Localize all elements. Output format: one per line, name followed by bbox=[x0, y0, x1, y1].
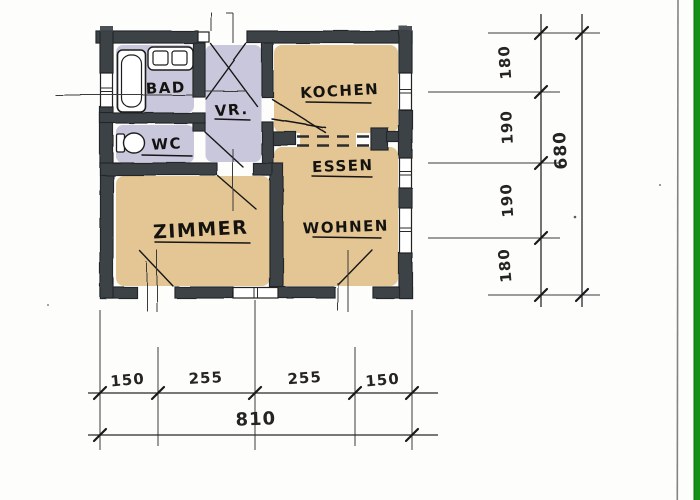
green-scan-stripe bbox=[694, 0, 700, 500]
window-zimmer-bottom bbox=[233, 288, 278, 299]
window-bad-left bbox=[101, 73, 113, 107]
room-label-essen: ESSEN bbox=[312, 156, 374, 176]
room-label-underline bbox=[306, 102, 371, 103]
dim-label-h3: 255 bbox=[287, 368, 322, 388]
horizontal-dimension-chain: 150 255 255 150 810 bbox=[88, 300, 438, 450]
dim-label-v1: 180 bbox=[495, 45, 515, 80]
dim-label-h2: 255 bbox=[188, 368, 223, 388]
room-label-underline bbox=[142, 155, 192, 156]
window-kochen-right bbox=[400, 73, 412, 110]
scan-speck bbox=[574, 216, 577, 219]
scanner-edge-line bbox=[677, 0, 678, 500]
room-label-bad: BAD bbox=[146, 78, 187, 97]
room-label-vorraum: VR. bbox=[214, 100, 249, 120]
dim-label-h4: 150 bbox=[365, 370, 401, 391]
dim-label-v3: 190 bbox=[497, 183, 517, 218]
room-label-underline bbox=[313, 237, 381, 238]
vertical-dimension-chain: 180 190 190 180 680 bbox=[428, 14, 600, 307]
dim-label-v2: 190 bbox=[497, 110, 517, 145]
dim-label-v-total: 680 bbox=[550, 131, 572, 170]
room-label-wohnen: WOHNEN bbox=[302, 217, 389, 238]
sink-symbol bbox=[148, 47, 193, 70]
dim-label-h-total: 810 bbox=[235, 408, 276, 430]
scan-speck bbox=[659, 184, 661, 186]
bathtub-symbol bbox=[118, 50, 146, 112]
window-wohnen-right bbox=[400, 208, 412, 253]
dim-label-h1: 150 bbox=[110, 370, 146, 391]
dim-label-v4: 180 bbox=[495, 248, 516, 284]
toilet-symbol bbox=[117, 133, 145, 153]
room-label-underline bbox=[312, 176, 372, 177]
scanned-floor-plan-page: BAD WC VR. KOCHEN ESSEN WOHNEN ZIMMER bbox=[0, 0, 700, 500]
door-frame-cell bbox=[198, 32, 209, 42]
scan-speck bbox=[47, 304, 49, 306]
room-label-wc: WC bbox=[151, 134, 182, 154]
window-essen-right bbox=[400, 158, 412, 188]
floor-plan-drawing: BAD WC VR. KOCHEN ESSEN WOHNEN ZIMMER bbox=[0, 0, 700, 500]
